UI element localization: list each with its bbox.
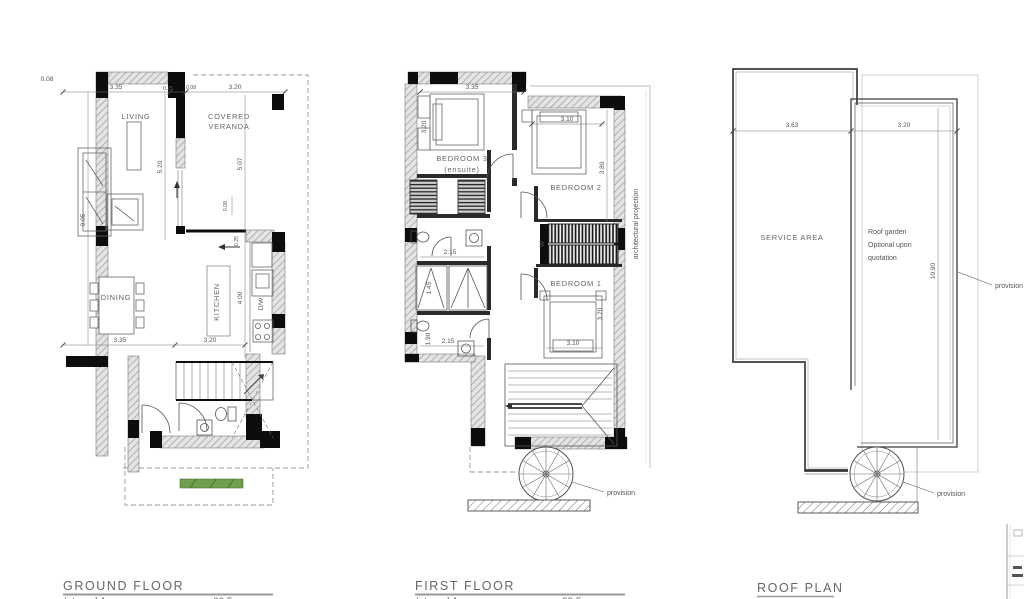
fridge (252, 243, 272, 267)
dim-label: 3.20 (229, 84, 242, 91)
kitchen-label: KITCHEN (212, 283, 221, 321)
dim-label: 3.35 (110, 84, 123, 91)
dim-label: 1.45 (426, 281, 433, 294)
dim-label: 0.25 (163, 86, 173, 92)
roof-projection-outline (862, 75, 978, 472)
first-floor-title: FIRST FLOOR (415, 579, 515, 593)
roof-plan-title: ROOF PLAN (757, 581, 844, 595)
architectural-drawing: 0.08 3.35 0.25 0.08 3.20 9.05 5.20 5.07 … (0, 0, 1024, 599)
roof-garden-label-2: Optional upon (868, 242, 912, 249)
dining-furniture (90, 277, 144, 334)
bedroom2-bed (522, 110, 586, 174)
floor-plan-sheet: 0.08 3.35 0.25 0.08 3.20 9.05 5.20 5.07 … (0, 0, 1024, 599)
dim-label: 3.80 (599, 161, 606, 174)
bedroom1-label: BEDROOM 1 (550, 279, 601, 288)
provision-label: provision (607, 490, 635, 497)
roof-outline (733, 69, 957, 502)
up-arrow (174, 181, 180, 188)
living-furniture (78, 122, 180, 236)
dim-label: 3.20 (597, 307, 604, 320)
dim-label: 3.20 (421, 120, 428, 133)
provision-label: provision (937, 491, 965, 498)
dim-label: 0.08 (186, 85, 196, 91)
grass-strip (180, 479, 243, 488)
wc-door-arc (179, 403, 207, 431)
dim-label: 0.08 (41, 76, 54, 83)
dim-label: 3.35 (466, 84, 479, 91)
roof-spiral-stair (850, 447, 904, 501)
projection-boundary (530, 86, 650, 468)
bedroom3-label: BEDROOM 3 (436, 154, 487, 163)
first-hatched-strip (468, 500, 590, 511)
first-floor-plan: provision 3.35 3.20 3.10 3.80 2.15 1.45 … (405, 72, 650, 511)
toilet-tank (228, 407, 236, 421)
dining-label: DINING (101, 293, 131, 302)
dim-label: 3.10 (561, 116, 574, 123)
roof-garden-label-1: Roof garden (868, 229, 907, 236)
dim-label: 3.63 (786, 122, 799, 129)
coffee-table (127, 122, 141, 170)
veranda-label-1: COVERED (208, 112, 250, 121)
wardrobe-label: W (539, 240, 546, 247)
first-stair (505, 364, 617, 446)
dim-label: 0.08 (223, 201, 229, 211)
title-block-clipped (1007, 524, 1024, 599)
wc-fixtures (142, 403, 236, 435)
wc-sink (197, 420, 212, 435)
dim-label: 0.25 (234, 236, 240, 246)
roof-dimensions (731, 108, 960, 440)
dim-label: 4.00 (237, 291, 244, 304)
dining-table (99, 277, 134, 334)
corridor-wardrobe (548, 224, 618, 243)
dim-label: 2.15 (444, 249, 457, 256)
spiral-stair (519, 447, 573, 501)
bedroom3-ensuite-label: (ensuite) (444, 165, 479, 174)
architectural-projection-label: architectural projection (633, 189, 640, 260)
living-label: LIVING (122, 112, 151, 121)
service-area-label: SERVICE AREA (760, 233, 823, 242)
dishwasher-label: D/W (258, 297, 265, 311)
dim-label: 3.10 (567, 340, 580, 347)
bedroom2-label: BEDROOM 2 (550, 183, 601, 192)
dim-label: 3.35 (114, 337, 127, 344)
dim-label: 3.20 (204, 337, 217, 344)
dim-label: 5.07 (237, 157, 244, 170)
roof-plan: 3.63 3.20 10.90 SERVICE AREA Roof garden… (731, 69, 1024, 513)
veranda-label-2: VERANDA (208, 122, 249, 131)
ground-floor-title: GROUND FLOOR (63, 579, 184, 593)
dim-label: 9.05 (80, 213, 87, 226)
roof-hatched-strip (798, 502, 918, 513)
dim-label: 5.20 (157, 160, 164, 173)
dim-label: 1.90 (425, 332, 432, 345)
roof-garden-label-3: quotation (868, 255, 897, 262)
dim-label: 2.15 (442, 338, 455, 345)
entry-door-arc (142, 405, 170, 433)
wardrobes (410, 180, 618, 310)
provision-label-clipped: provision (995, 283, 1023, 290)
ground-floor-plan: 0.08 3.35 0.25 0.08 3.20 9.05 5.20 5.07 … (41, 72, 308, 505)
plan-titles: GROUND FLOOR Internal Area 66.5 FIRST FL… (63, 579, 844, 599)
dim-label: 10.90 (930, 262, 937, 279)
dim-label: 3.20 (898, 122, 911, 129)
toilet (216, 408, 227, 421)
